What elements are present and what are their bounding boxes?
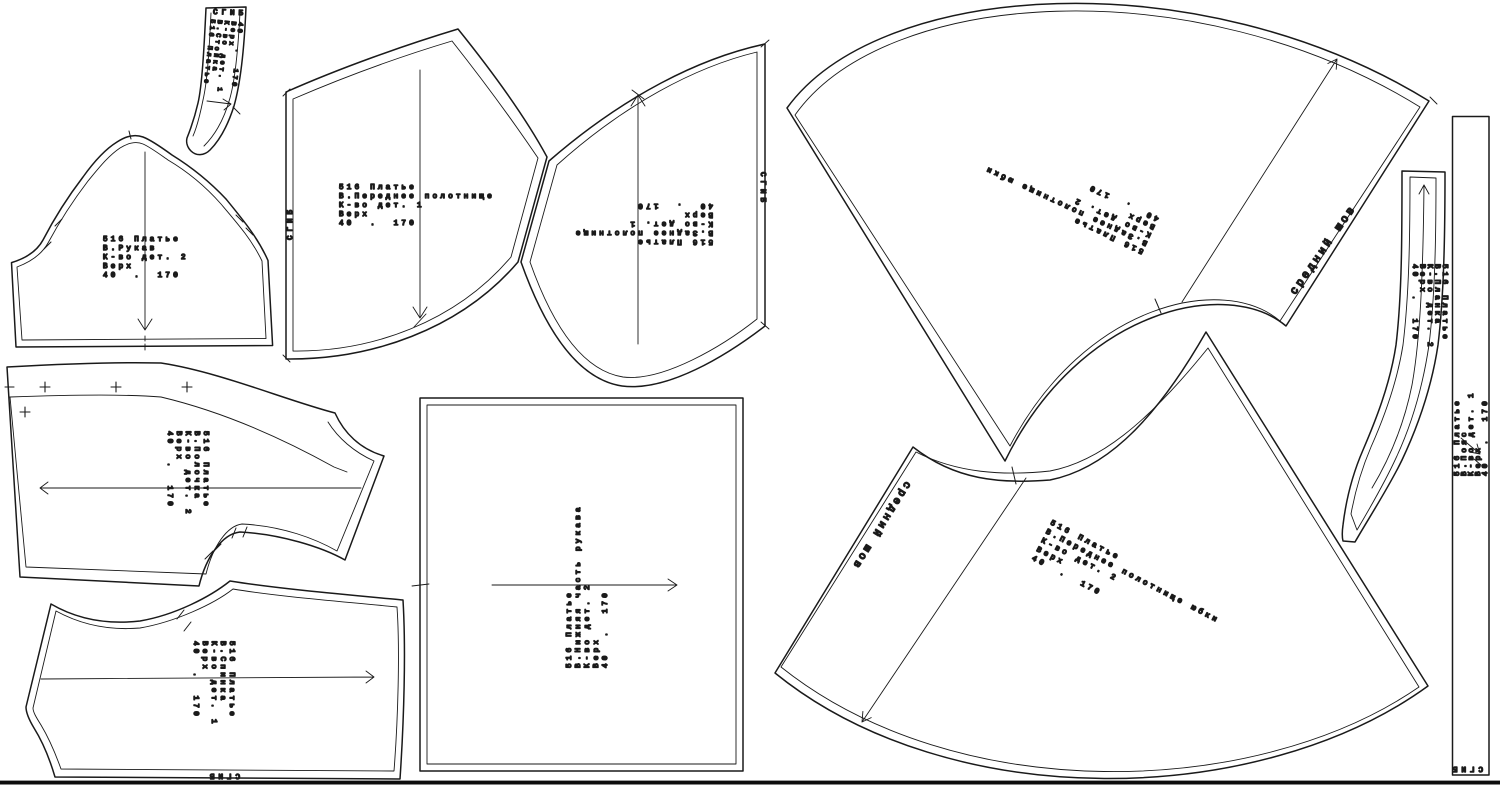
svg-text:516 ПлатьеВ.ПланкаК-во дет. 2В: 516 ПлатьеВ.ПланкаК-во дет. 2Верх40 . 17…	[1410, 264, 1448, 350]
svg-text:516 ПлатьеВ.ПолочкаК-во дет. 2: 516 ПлатьеВ.ПолочкаК-во дет. 2Верх40 . 1…	[165, 431, 209, 517]
svg-text:СГИБ: СГИБ	[287, 206, 295, 240]
svg-text:СГИБ: СГИБ	[206, 771, 240, 779]
svg-text:516 ПлатьеВ.РукавК-во дет. 2Ве: 516 ПлатьеВ.РукавК-во дет. 2Верх40 . 170	[103, 236, 189, 280]
svg-text:516 ПлатьеВ.СпинкаК-во дет. 1В: 516 ПлатьеВ.СпинкаК-во дет. 1Верх40 . 17…	[191, 641, 235, 727]
svg-text:СГИБ: СГИБ	[1449, 764, 1483, 772]
svg-text:СГИБ: СГИБ	[213, 9, 247, 18]
svg-text:СГИБ: СГИБ	[758, 172, 766, 206]
svg-text:516 ПлатьеВ.ПоясК-во дет. 1Вер: 516 ПлатьеВ.ПоясК-во дет. 1Верх40 . 170	[1454, 390, 1490, 476]
